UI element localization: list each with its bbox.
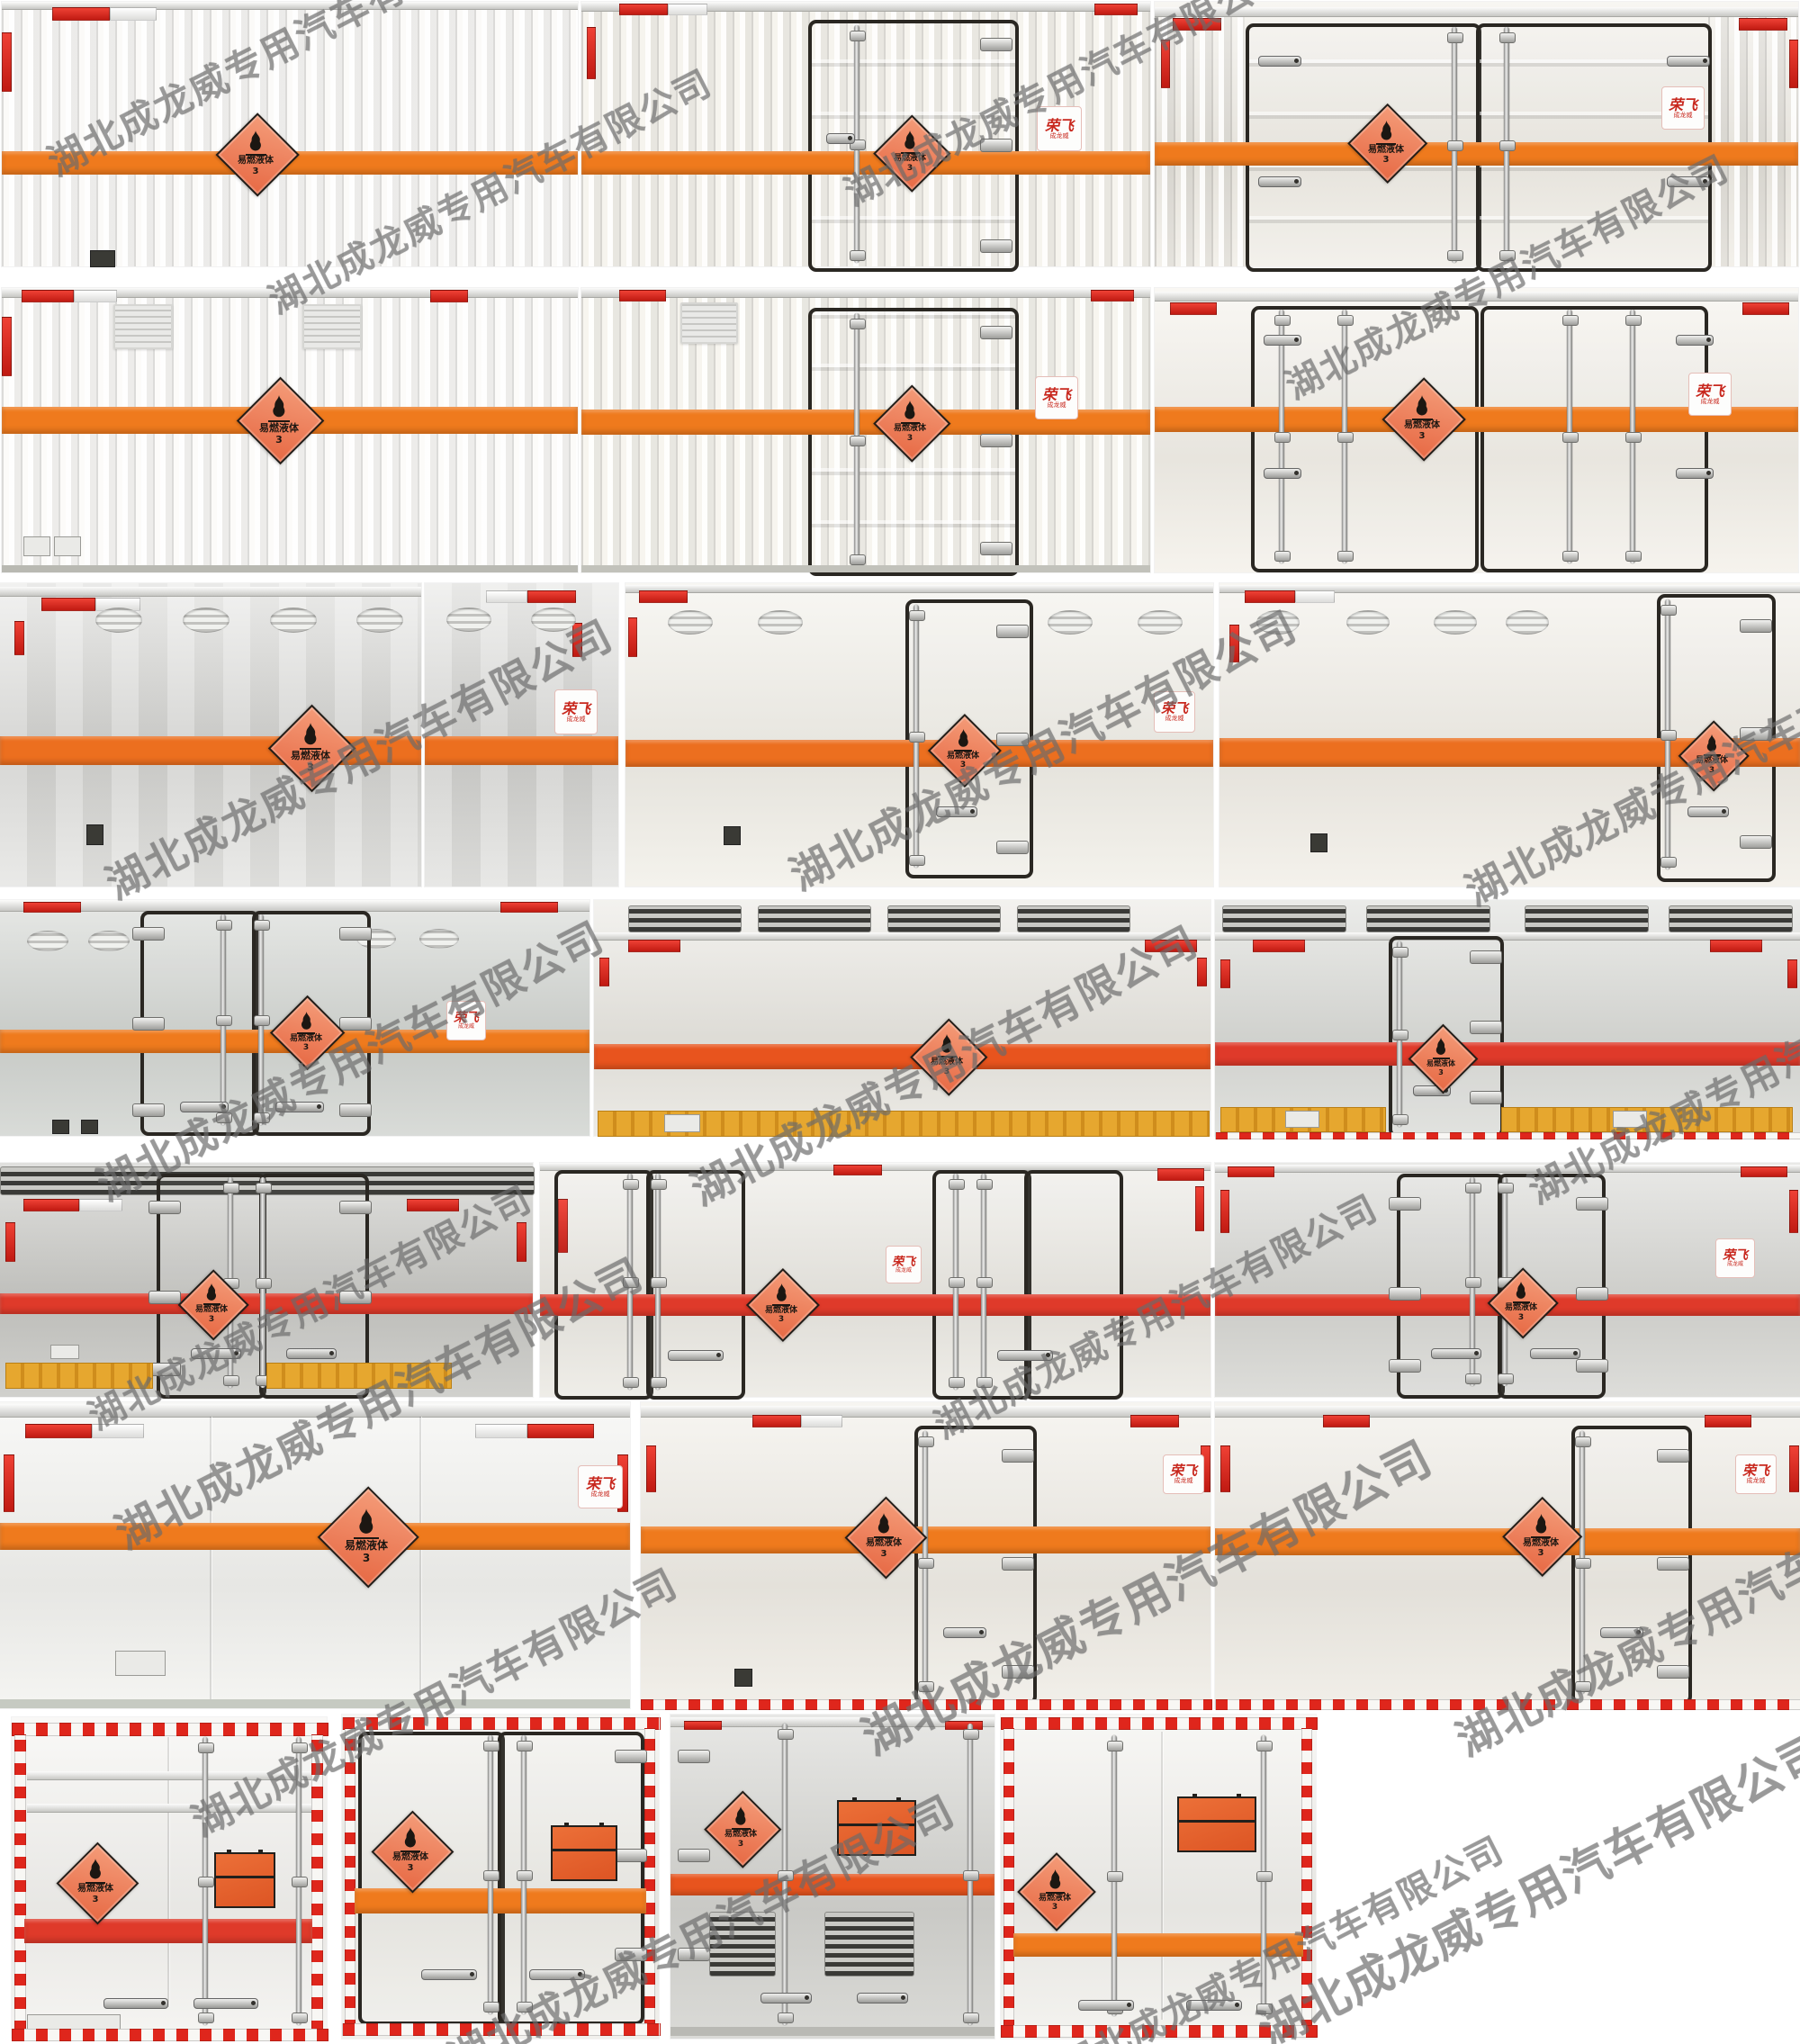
lock-rod-clamp [623, 1179, 639, 1190]
hazard-placard: 易燃液体3 [845, 1497, 922, 1574]
orange-plate-hook [258, 1850, 263, 1854]
door-hinge [1657, 1449, 1689, 1463]
lock-rod-clamp [651, 1277, 667, 1288]
louver-vent [887, 905, 1001, 932]
hazard-placard: 易燃液体3 [1488, 1268, 1554, 1335]
reflector-strip [833, 1165, 882, 1175]
reflector-strip [639, 590, 688, 603]
lock-rod-clamp [651, 1377, 667, 1388]
reflector-strip [517, 1222, 526, 1262]
handle-keyhole [848, 136, 852, 140]
reflector-strip [1741, 1166, 1787, 1177]
lock-rod-clamp [1337, 432, 1354, 443]
top-rail [641, 1406, 1210, 1418]
door-hinge [1002, 1557, 1034, 1571]
lock-rod-clamp [949, 1179, 965, 1190]
cargo-warning-stripe [355, 1888, 646, 1913]
nameplate [81, 1120, 98, 1134]
lock-rod-clamp [256, 1183, 272, 1193]
door-hinge [980, 434, 1012, 447]
reflector-strip [1170, 302, 1217, 315]
flame-icon [730, 1805, 751, 1827]
handle-keyhole [1294, 471, 1299, 475]
door-hinge [1740, 619, 1772, 633]
door-hinge [339, 1103, 372, 1117]
lock-rod-clamp [198, 2012, 214, 2023]
reflector-strip [1091, 290, 1134, 302]
lock-rod-clamp [1562, 551, 1579, 562]
placard-content: 易燃液体3 [57, 1842, 134, 1920]
louver-vent [1525, 905, 1649, 932]
brand-badge-line1: 荣飞 [1669, 98, 1697, 113]
nameplate [54, 536, 81, 556]
oval-vent [1346, 610, 1390, 635]
oval-vent [446, 608, 491, 632]
louver-vent [680, 302, 738, 344]
door-hinge [1576, 1287, 1608, 1301]
orange-plate-hook [599, 1823, 604, 1827]
brand-badge: 荣飞成龙威 [578, 1465, 623, 1508]
door-hinge [996, 625, 1029, 638]
reflector-strip [801, 1415, 842, 1427]
hazard-placard: 易燃液体3 [747, 1269, 815, 1337]
lock-rod-clamp [1392, 1114, 1408, 1125]
lock-rod-clamp [963, 2012, 979, 2023]
door-hinge [132, 1017, 165, 1031]
reflector-strip [52, 7, 110, 21]
placard-content: 易燃液体3 [705, 1791, 777, 1863]
lock-rod-clamp [1337, 551, 1354, 562]
lock-rod-clamp [216, 1015, 232, 1026]
red-white-reflective-strip [12, 1723, 328, 1736]
hazard-placard: 易燃液体3 [216, 113, 295, 193]
brand-badge-line1: 荣飞 [1696, 384, 1724, 399]
orange-plate-divider [1179, 1820, 1255, 1823]
reflector-strip [74, 290, 117, 302]
hazard-placard: 易燃液体3 [372, 1811, 449, 1888]
placard-label: 易燃液体 [1404, 421, 1440, 431]
orange-warning-plate [214, 1852, 275, 1908]
door-handle [1676, 468, 1714, 479]
lock-rod-clamp [850, 436, 866, 446]
placard-content: 易燃液体3 [216, 113, 295, 193]
placard-class-number: 3 [93, 1895, 99, 1905]
placard-label: 易燃液体 [195, 1306, 228, 1314]
reflector-strip [1220, 1190, 1229, 1233]
lock-rod-clamp [850, 319, 866, 329]
lock-rod-clamp [198, 1877, 214, 1887]
placard-content: 易燃液体3 [1382, 378, 1462, 457]
door-hinge [615, 1750, 647, 1763]
lock-rod-clamp [623, 1377, 639, 1388]
lock-rod-clamp [223, 1375, 239, 1386]
door-handle [1667, 56, 1710, 67]
handle-keyhole [161, 2001, 166, 2005]
lock-rod-clamp [1107, 1741, 1123, 1751]
lock-rod-clamp [850, 554, 866, 565]
reflector-strip [486, 590, 527, 603]
lock-rod-clamp [778, 1729, 794, 1740]
placard-class-number: 3 [363, 1553, 370, 1564]
lock-rod-clamp [778, 2012, 794, 2023]
lock-rod-clamp [850, 250, 866, 261]
door-handle [286, 1348, 337, 1359]
brand-badge: 荣飞成龙威 [1661, 86, 1705, 130]
door-handle [103, 1998, 168, 2009]
oval-vent [1434, 610, 1477, 635]
corrugated-side-strip [1708, 13, 1798, 266]
louver-vent [758, 905, 871, 932]
placard-class-number: 3 [1419, 432, 1426, 442]
oval-vent [270, 608, 317, 633]
reflector-strip [752, 1415, 801, 1427]
nameplate [23, 536, 50, 556]
reflector-strip [1157, 1168, 1204, 1181]
lock-rod-clamp [1562, 315, 1579, 326]
reflector-strip [1220, 959, 1230, 988]
louver-vent [1669, 905, 1793, 932]
louver-vent [824, 1912, 914, 1976]
placard-label: 易燃液体 [866, 1539, 902, 1549]
placard-content: 易燃液体3 [1018, 1853, 1092, 1927]
reflector-strip [527, 590, 576, 603]
lock-rod-clamp [918, 1436, 934, 1447]
watermark-text: 湖北成龙威专用汽车有限公司 [1245, 1713, 1800, 2044]
placard-class-number: 3 [253, 167, 259, 177]
lock-rod-clamp [1575, 1436, 1591, 1447]
panel-seam [419, 1417, 421, 1699]
lock-rod-clamp [1274, 551, 1291, 562]
handle-keyhole [1706, 338, 1711, 342]
brand-badge-line2: 成龙威 [1050, 133, 1069, 140]
brand-badge-line2: 成龙威 [1048, 402, 1066, 409]
handle-keyhole [1294, 179, 1299, 184]
placard-label: 易燃液体 [1505, 1304, 1537, 1312]
brand-badge-line2: 成龙威 [895, 1268, 912, 1274]
door-hinge [1389, 1287, 1421, 1301]
reflector-strip [1323, 1415, 1370, 1427]
door-hinge [1470, 950, 1502, 964]
reflector-strip [2, 317, 12, 376]
oval-vent [1138, 610, 1183, 635]
brand-badge-line2: 成龙威 [1727, 1262, 1743, 1267]
door-handle [1264, 468, 1301, 479]
door-hinge [339, 927, 372, 941]
lock-rod-clamp [976, 1277, 993, 1288]
cargo-warning-stripe [625, 740, 1213, 767]
reflector-strip [1195, 1186, 1204, 1231]
truck-rear-collage: 易燃液体3易燃液体3荣飞成龙威易燃液体3荣飞成龙威易燃液体3易燃液体3荣飞成龙威… [0, 0, 1800, 2044]
oval-vent [758, 610, 803, 635]
handle-keyhole [1474, 1351, 1479, 1355]
reflector-strip [500, 902, 558, 913]
placard-content: 易燃液体3 [318, 1487, 415, 1584]
handle-keyhole [329, 1351, 334, 1355]
placard-label: 易燃液体 [1523, 1539, 1559, 1549]
brand-badge-line1: 荣飞 [586, 1477, 615, 1491]
lock-rod-clamp [292, 1877, 308, 1887]
door-hinge [1576, 1197, 1608, 1211]
door-hinge [980, 38, 1012, 51]
flame-icon [1511, 1281, 1531, 1301]
placard-label: 易燃液体 [259, 423, 299, 434]
nameplate [52, 1120, 69, 1134]
nameplate [1285, 1111, 1319, 1128]
nameplate [664, 1114, 700, 1132]
door-hinge [980, 542, 1012, 555]
lock-rod-clamp [1447, 32, 1463, 43]
door-hinge [980, 326, 1012, 339]
brand-badge-line1: 荣飞 [892, 1256, 915, 1268]
door-handle [1676, 335, 1714, 346]
brand-badge-line2: 成龙威 [591, 1491, 610, 1498]
placard-content: 易燃液体3 [372, 1811, 449, 1888]
reflector-strip [1705, 1415, 1751, 1427]
reflector-strip [1295, 590, 1335, 603]
flame-icon [899, 400, 921, 421]
lock-rod-clamp [949, 1277, 965, 1288]
lock-rod-clamp [1625, 315, 1642, 326]
brand-badge-line1: 荣飞 [1723, 1249, 1748, 1262]
handle-keyhole [1706, 471, 1711, 475]
reflector-strip [110, 7, 157, 21]
reflector-strip [619, 290, 666, 302]
door-hinge [1002, 1449, 1034, 1463]
door-handle [1530, 1348, 1580, 1359]
oval-vent [668, 610, 713, 635]
orange-plate-hook [1237, 1794, 1241, 1798]
placard-label: 易燃液体 [1426, 1060, 1455, 1067]
handle-keyhole [1294, 59, 1299, 63]
lock-rod-clamp [1499, 32, 1516, 43]
reflector-strip [475, 1424, 527, 1438]
reflector-strip [23, 902, 81, 913]
brand-badge: 荣飞成龙威 [886, 1246, 922, 1283]
louver-vent [1366, 905, 1490, 932]
red-white-reflective-strip [1215, 1132, 1800, 1139]
nameplate [86, 824, 103, 845]
flame-icon [84, 1858, 107, 1881]
placard-content: 易燃液体3 [238, 378, 320, 461]
door-hinge [1576, 1359, 1608, 1373]
oval-vent [95, 608, 142, 633]
oval-vent [419, 929, 459, 949]
placard-content: 易燃液体3 [1488, 1268, 1554, 1335]
brand-badge-line2: 成龙威 [1174, 1478, 1193, 1484]
reflector-strip [684, 1721, 722, 1730]
lock-rod-clamp [1465, 1373, 1481, 1384]
brand-badge-line2: 成龙威 [1701, 399, 1720, 405]
orange-plate-hook [564, 1823, 569, 1827]
placard-content: 易燃液体3 [874, 385, 946, 457]
reflector-strip [628, 940, 680, 952]
brand-badge: 荣飞成龙威 [1035, 376, 1078, 419]
brand-badge: 荣飞成龙威 [1688, 373, 1732, 416]
lock-rod-clamp [1392, 1030, 1408, 1040]
door-hinge [996, 841, 1029, 854]
placard-label: 易燃液体 [238, 157, 274, 167]
oval-vent [1506, 610, 1549, 635]
handle-keyhole [1703, 59, 1707, 63]
top-rail [594, 932, 1210, 941]
reflector-strip [527, 1424, 594, 1438]
brand-badge-line1: 荣飞 [1742, 1464, 1769, 1478]
lock-rod-clamp [254, 1015, 270, 1026]
hazard-placard: 易燃液体3 [1382, 378, 1462, 457]
lock-rod-clamp [909, 855, 925, 866]
hazard-placard: 易燃液体3 [318, 1487, 415, 1584]
placard-class-number: 3 [408, 1864, 414, 1874]
door-handle [1431, 1348, 1481, 1359]
brand-badge-line2: 成龙威 [1674, 113, 1693, 119]
orange-plate-divider [553, 1849, 616, 1851]
placard-label: 易燃液体 [1368, 146, 1404, 156]
lock-rod-clamp [963, 1870, 979, 1881]
door-hinge [678, 1750, 710, 1763]
door-hinge [148, 1201, 181, 1214]
reflector-strip [1253, 940, 1305, 952]
hazard-placard: 易燃液体3 [1018, 1853, 1092, 1927]
nameplate [115, 1651, 166, 1676]
hazard-placard: 易燃液体3 [705, 1791, 777, 1863]
brand-badge-line1: 荣飞 [1170, 1464, 1197, 1478]
door-handle [1687, 806, 1729, 817]
reflector-strip [646, 1445, 656, 1492]
orange-warning-plate [1177, 1796, 1256, 1852]
oval-vent [1048, 610, 1093, 635]
lock-rod-clamp [292, 2012, 308, 2023]
flame-icon [352, 1508, 381, 1536]
top-rail [0, 587, 421, 597]
handle-keyhole [805, 1995, 809, 2000]
door-hinge [1470, 1021, 1502, 1034]
hazard-placard: 易燃液体3 [874, 385, 946, 457]
reflector-strip [1130, 1415, 1179, 1427]
placard-label: 易燃液体 [345, 1540, 388, 1552]
oval-vent [356, 608, 403, 633]
door-hinge [1740, 835, 1772, 849]
lock-rod-clamp [1498, 1183, 1514, 1193]
reflector-strip [1742, 302, 1789, 315]
door-handle [857, 1993, 908, 2003]
reflector-strip [619, 4, 668, 15]
placard-content: 易燃液体3 [845, 1497, 922, 1574]
hazard-placard: 易燃液体3 [1408, 1024, 1473, 1089]
flame-icon [399, 1826, 422, 1850]
lock-rod-clamp [254, 920, 270, 931]
placard-label: 易燃液体 [894, 425, 926, 433]
orange-warning-plate [551, 1825, 617, 1881]
reflector-strip [25, 1424, 92, 1438]
placard-class-number: 3 [1518, 1314, 1524, 1322]
lock-rod-clamp [909, 732, 925, 743]
lock-rod-clamp [517, 1870, 533, 1881]
nameplate [50, 1345, 79, 1359]
ground-strip [581, 565, 1150, 572]
orange-plate-hook [1192, 1794, 1197, 1798]
placard-label: 易燃液体 [392, 1853, 428, 1863]
lock-rod-clamp [517, 1741, 533, 1751]
brand-badge-line2: 成龙威 [1747, 1478, 1766, 1484]
ground-strip [2, 565, 578, 572]
door-hinge [1389, 1359, 1421, 1373]
reflector-strip [5, 1222, 15, 1262]
door-hinge [148, 1291, 181, 1304]
red-white-reflective-strip [1003, 1728, 1014, 2032]
oval-vent [183, 608, 229, 633]
hazard-placard: 易燃液体3 [1348, 104, 1424, 180]
door-handle [193, 1998, 258, 2009]
lock-rod-clamp [223, 1183, 239, 1193]
top-rail [1215, 1165, 1800, 1173]
lock-rod-clamp [1660, 605, 1677, 616]
lock-rod-clamp [1660, 857, 1677, 868]
lock-rod-clamp [1274, 315, 1291, 326]
ground-strip [0, 1699, 630, 1708]
placard-class-number: 3 [907, 435, 913, 443]
flame-icon [1410, 394, 1434, 418]
placard-label: 易燃液体 [765, 1307, 797, 1315]
flame-icon [1044, 1868, 1066, 1891]
reflector-strip [2, 32, 12, 92]
lock-rod-clamp [1625, 551, 1642, 562]
flame-icon [244, 130, 267, 153]
nameplate [734, 1669, 752, 1687]
lock-rod-clamp [256, 1278, 272, 1289]
panel-seam [1161, 1732, 1163, 2020]
handle-keyhole [979, 1630, 984, 1634]
reflector-strip [1789, 1190, 1798, 1233]
door-hinge [1657, 1557, 1689, 1571]
cargo-warning-stripe [24, 1919, 312, 1943]
reflector-strip [22, 290, 74, 302]
reflector-strip [1739, 18, 1787, 31]
flame-icon [202, 1283, 221, 1302]
louver-vent [113, 304, 173, 349]
lock-rod-clamp [1447, 140, 1463, 151]
cargo-door [1480, 306, 1708, 572]
lock-rod-clamp [651, 1179, 667, 1190]
flame-icon [1530, 1513, 1552, 1535]
oval-vent [27, 931, 68, 951]
lock-rod-clamp [1625, 432, 1642, 443]
nameplate [724, 826, 741, 845]
louver-vent [1017, 905, 1130, 932]
reflector-strip [23, 1199, 79, 1211]
door-handle [1264, 335, 1301, 346]
flame-icon [953, 728, 974, 749]
flame-icon [266, 394, 292, 419]
lock-rod-clamp [483, 1870, 499, 1881]
lock-rod-clamp [850, 31, 866, 41]
door-handle [421, 1969, 477, 1980]
red-white-reflective-strip [14, 1734, 26, 2033]
reflector-strip [1789, 40, 1798, 88]
red-white-reflective-strip [1001, 1717, 1318, 1730]
reflector-strip [1710, 940, 1762, 952]
door-hinge [980, 239, 1012, 253]
placard-content: 易燃液体3 [1503, 1498, 1579, 1573]
handle-keyhole [470, 1972, 474, 1976]
cargo-warning-stripe [0, 1523, 630, 1550]
hazard-placard: 易燃液体3 [57, 1842, 134, 1920]
brand-badge: 荣飞成龙威 [554, 689, 598, 734]
reflector-strip [41, 598, 95, 611]
placard-label: 易燃液体 [1039, 1895, 1071, 1903]
door-handle [1258, 56, 1301, 67]
door-hinge [1470, 1091, 1502, 1104]
reflector-strip [628, 617, 637, 657]
